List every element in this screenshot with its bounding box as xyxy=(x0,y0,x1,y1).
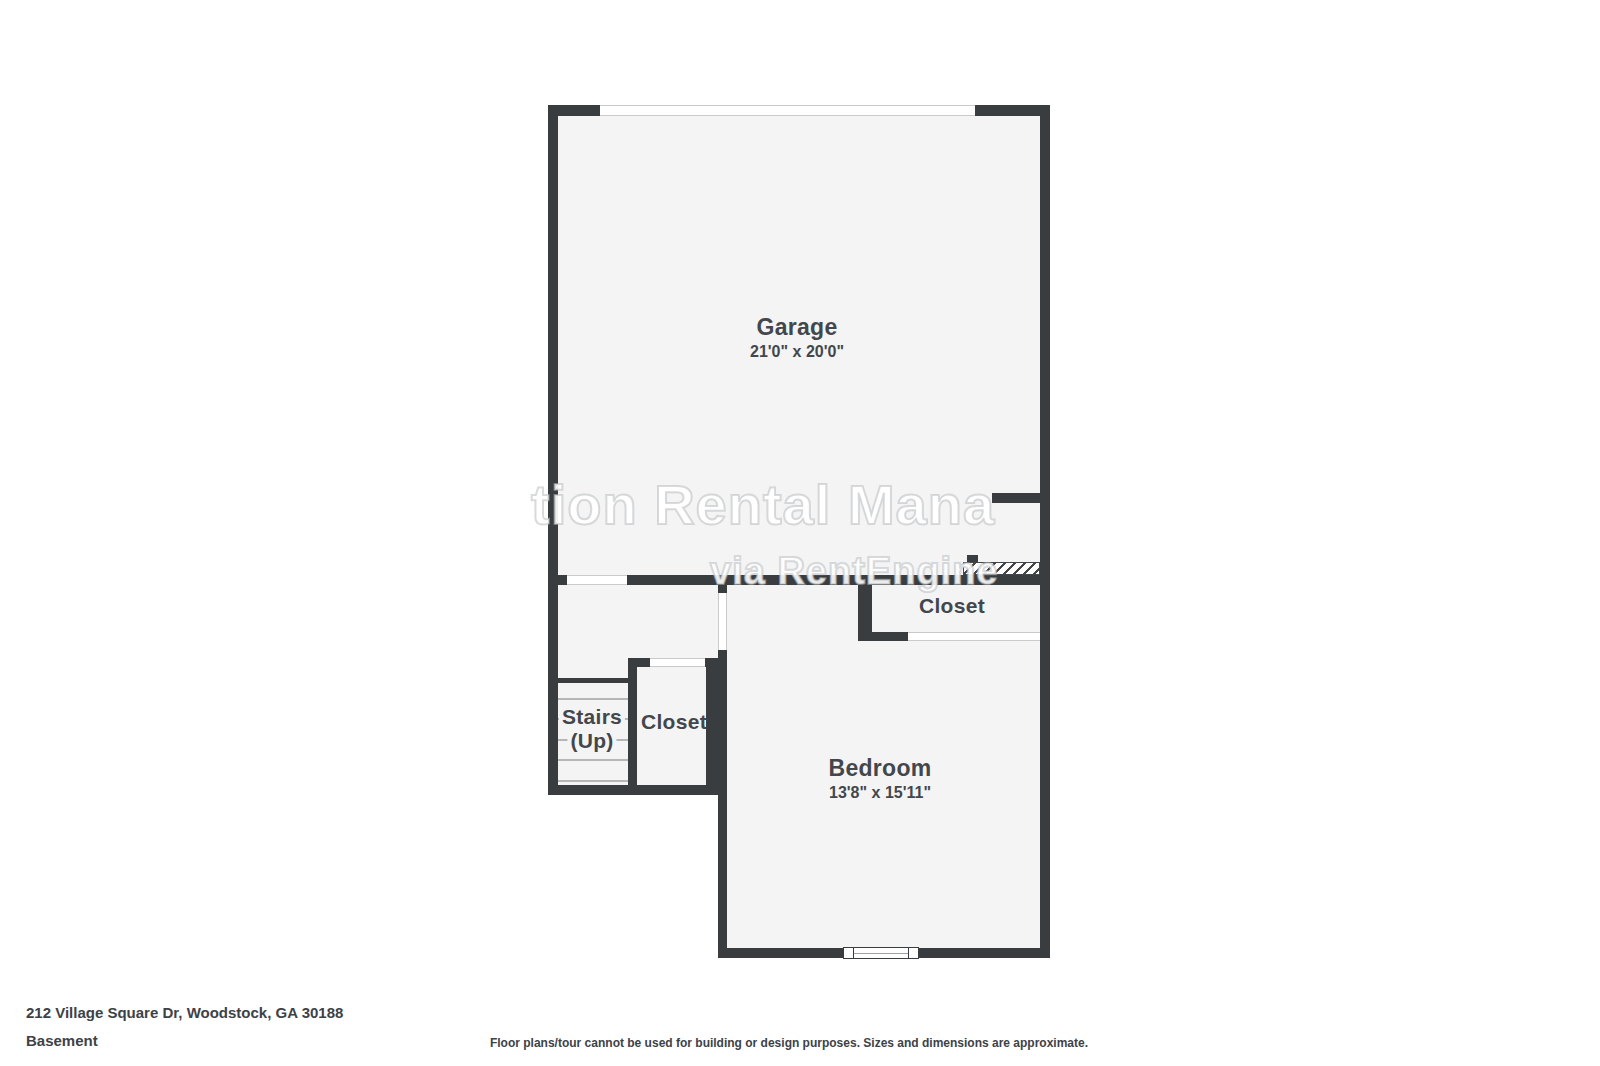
garage-label: Garage xyxy=(756,314,837,341)
closet-upper-door-opening xyxy=(908,632,1040,641)
wall-top-right xyxy=(975,105,1050,116)
disclaimer-text: Floor plans/tour cannot be used for buil… xyxy=(0,1036,1578,1050)
bedroom-window xyxy=(843,947,919,959)
bedroom-door-opening xyxy=(718,593,727,650)
closet-lower-door-opening xyxy=(650,658,705,667)
stair-tread xyxy=(558,759,628,761)
bedroom-dimensions: 13'8" x 15'11" xyxy=(829,784,931,802)
stair-tread xyxy=(558,780,628,782)
wall-right xyxy=(1040,105,1050,958)
window-pane xyxy=(854,953,908,954)
wall-hall-bottom xyxy=(548,785,727,795)
wall-closet-lower-right xyxy=(706,658,727,795)
bedroom-label: Bedroom xyxy=(828,755,931,782)
stairs-edge-line xyxy=(558,678,628,683)
wall-entry-stub xyxy=(992,493,1040,503)
closet-lower-label: Closet xyxy=(641,710,707,734)
hall-stairs-floor xyxy=(558,585,727,785)
hall-door-opening xyxy=(567,575,627,585)
wall-left xyxy=(548,105,558,795)
stair-tread xyxy=(558,698,628,700)
stairs-up-label: (Up) xyxy=(567,729,616,753)
closet-upper-label: Closet xyxy=(919,594,985,618)
stairs-label: Stairs xyxy=(559,705,625,729)
garage-dimensions: 21'0" x 20'0" xyxy=(750,343,844,361)
watermark-line1: tion Rental Mana xyxy=(531,472,995,537)
garage-door-opening xyxy=(600,105,975,116)
wall-closet-lower-left xyxy=(628,658,637,795)
window-jamb xyxy=(908,948,909,958)
watermark-line2: via RentEngine xyxy=(710,550,999,593)
floorplan-page: Garage 21'0" x 20'0" Closet Bedroom 13'8… xyxy=(0,0,1600,1066)
address-text: 212 Village Square Dr, Woodstock, GA 301… xyxy=(26,1004,343,1021)
